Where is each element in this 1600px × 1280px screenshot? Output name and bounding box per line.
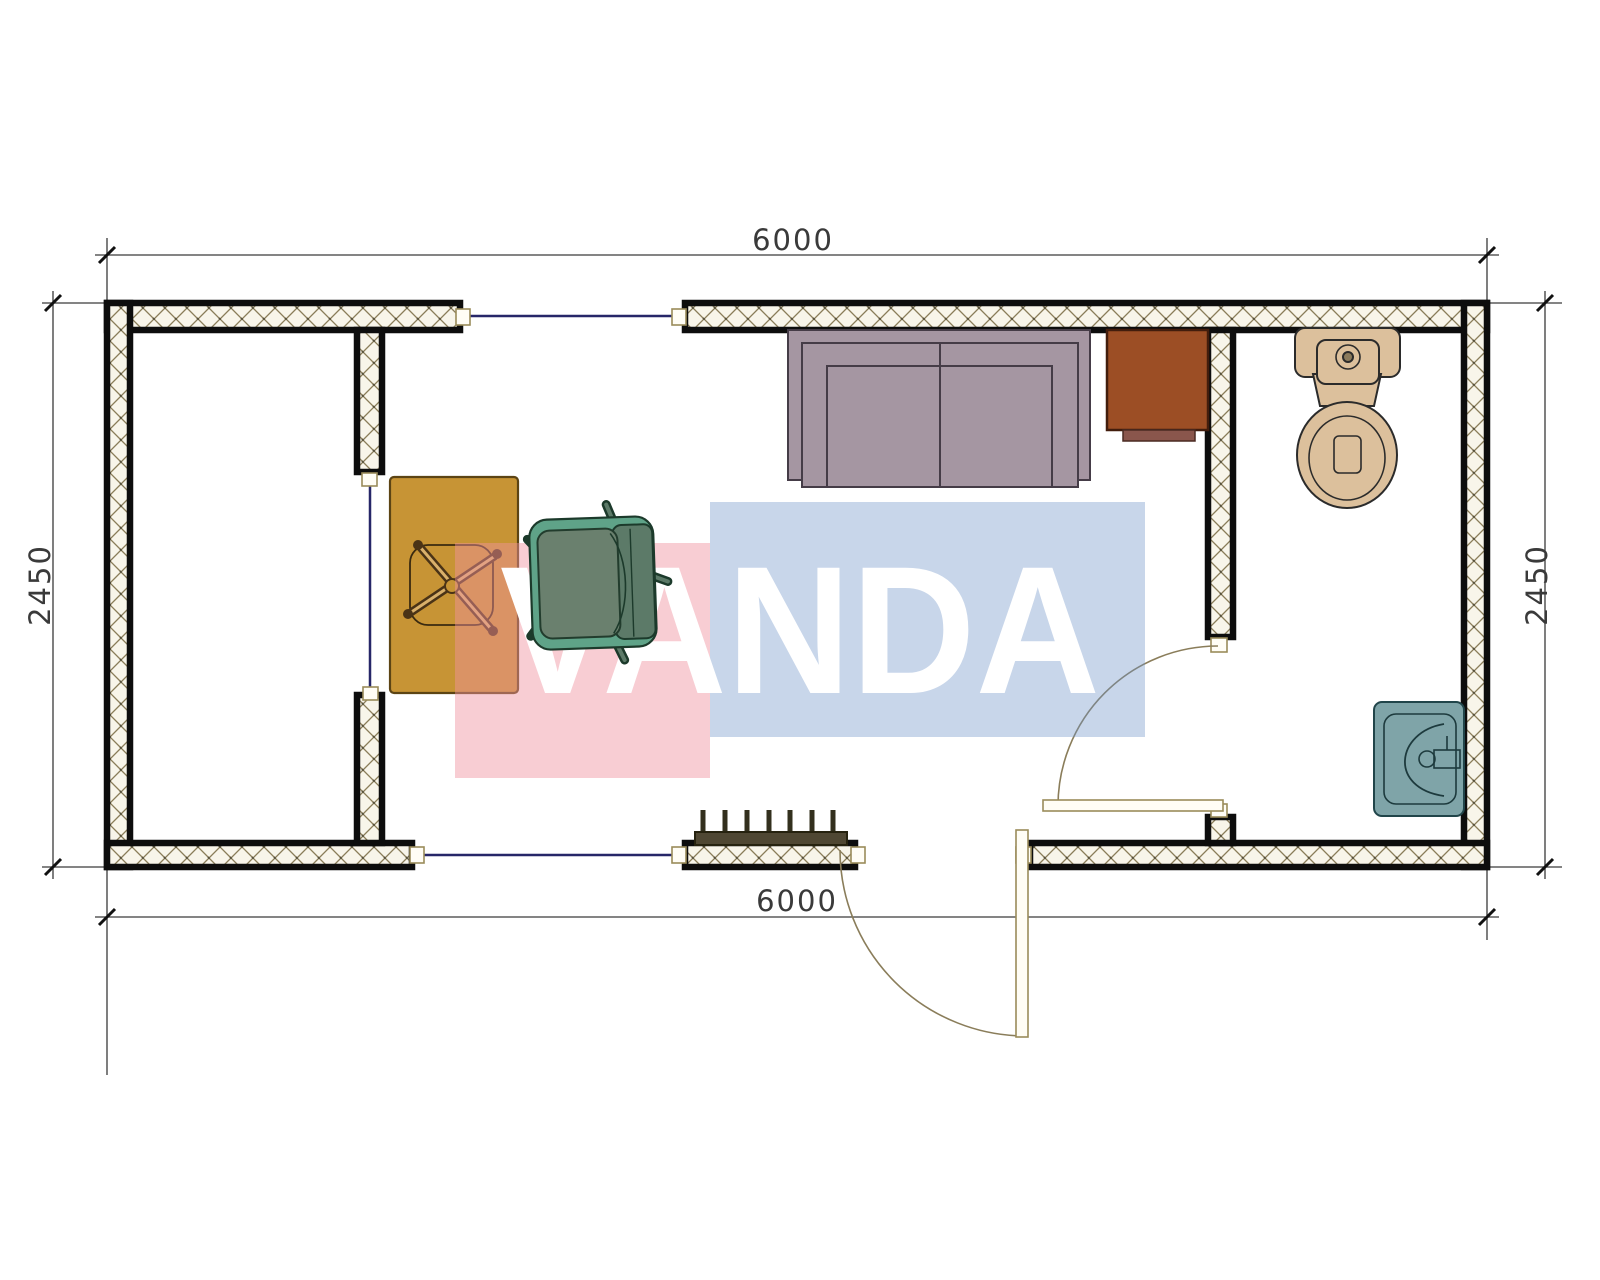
toilet	[1295, 328, 1400, 508]
right-dimension-label: 2450	[1520, 544, 1554, 626]
radiator	[695, 810, 847, 845]
chair-seat	[537, 528, 621, 639]
office-chair	[526, 503, 670, 664]
radiator-fins	[703, 810, 833, 834]
cap	[410, 847, 424, 863]
bottom-dimension-label: 6000	[756, 884, 838, 918]
cap	[362, 473, 377, 486]
wall-left	[107, 303, 130, 867]
cap	[672, 847, 686, 863]
exterior-door-leaf	[1016, 830, 1028, 1037]
wall-top-left-segment	[107, 303, 460, 330]
cabinet	[1107, 330, 1208, 441]
wall-bottom-right-segment	[1030, 843, 1487, 867]
left-dimension-label: 2450	[23, 544, 57, 626]
wall-bottom-left-segment	[107, 843, 412, 867]
top-dimension-label: 6000	[752, 223, 834, 257]
sink	[1374, 702, 1464, 816]
wall-top-right-segment	[685, 303, 1487, 330]
wall-right	[1464, 303, 1487, 867]
toilet-flush-plate	[1334, 436, 1361, 473]
exterior-door-swing-arc	[840, 850, 1026, 1036]
toilet-tank-button	[1343, 352, 1353, 362]
cabinet-base	[1123, 430, 1195, 441]
partition-storage-lower	[357, 695, 382, 843]
cap	[672, 309, 686, 325]
cap	[851, 847, 865, 863]
radiator-bar	[695, 832, 847, 845]
floor-plan-drawing: 6000 6000 2450 2450	[0, 0, 1600, 1280]
partition-bathroom	[1208, 330, 1233, 637]
floor-plan-canvas: 6000 6000 2450 2450	[0, 0, 1600, 1280]
sofa	[788, 330, 1090, 487]
cap	[1211, 638, 1227, 652]
partition-bathroom-stub	[1208, 817, 1233, 843]
cabinet-top	[1107, 330, 1208, 430]
bathroom-door-leaf	[1043, 800, 1223, 811]
cap	[363, 687, 378, 700]
cap	[456, 309, 470, 325]
partition-storage-upper	[357, 330, 382, 472]
wall-bottom-radiator-segment	[685, 843, 855, 867]
